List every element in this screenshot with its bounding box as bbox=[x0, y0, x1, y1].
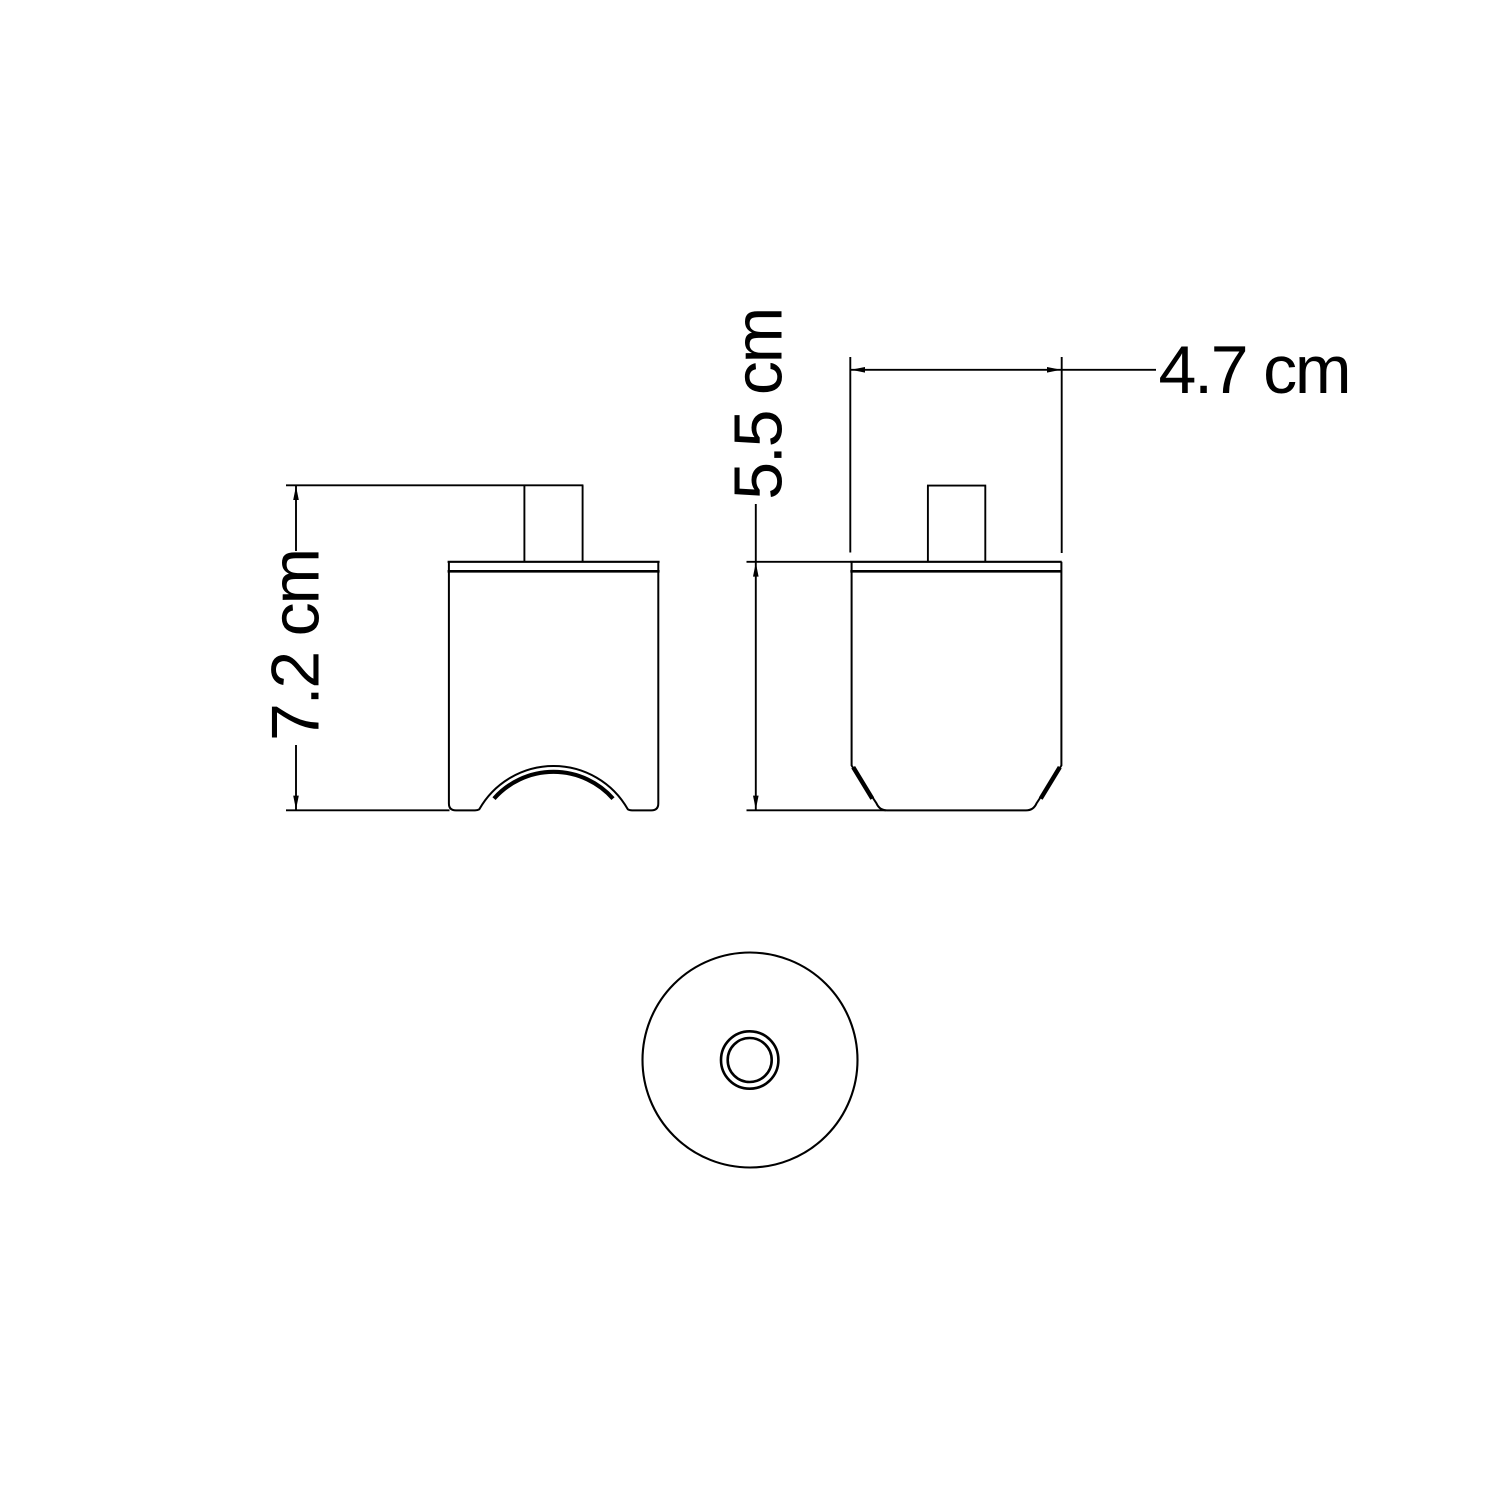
svg-text:4.7 cm: 4.7 cm bbox=[1159, 332, 1350, 408]
svg-text:7.2 cm: 7.2 cm bbox=[258, 550, 334, 741]
svg-text:5.5 cm: 5.5 cm bbox=[721, 309, 797, 500]
